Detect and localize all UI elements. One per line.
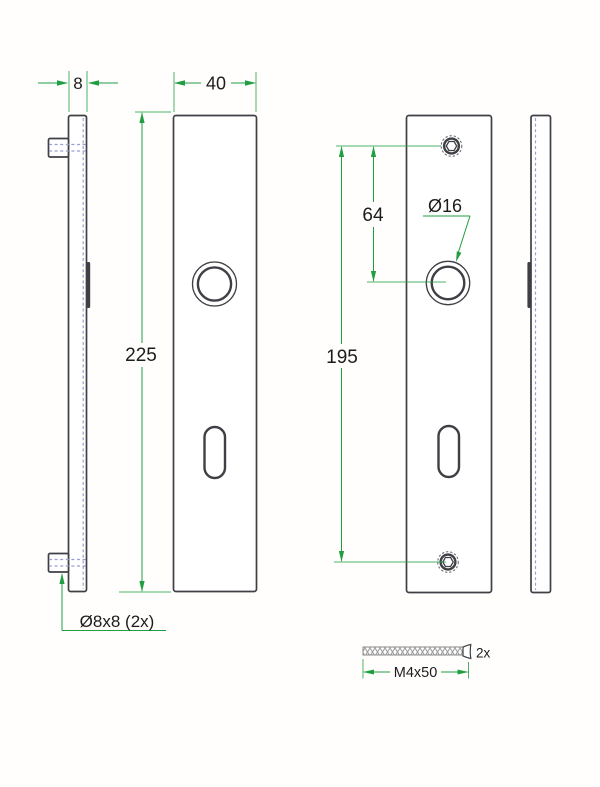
side-plate-body: [69, 116, 87, 592]
bottom-stud: [49, 554, 69, 573]
arrowhead-icon: [371, 271, 376, 282]
dim-label-64: 64: [362, 205, 384, 226]
arrowhead-icon: [363, 670, 374, 675]
side-view-right: [527, 116, 550, 593]
top-stud: [49, 139, 69, 158]
screw-countersunk-head: [463, 645, 471, 659]
arrowhead-icon: [139, 112, 144, 123]
arrowhead-icon: [458, 670, 469, 675]
screw-threaded-shaft: [363, 647, 463, 655]
side-view-left: [49, 116, 91, 592]
dimension-width: 40: [174, 72, 256, 112]
plate-body: [407, 116, 492, 593]
dim-label-thickness: 8: [73, 74, 82, 93]
arrowhead-icon: [57, 80, 68, 85]
dim-label-hole-spacing: 195: [326, 347, 358, 368]
arrowhead-icon: [139, 581, 144, 592]
dim-label-stud-spec: Ø8x8 (2x): [80, 612, 155, 631]
screw-drawing: 2x: [363, 645, 491, 661]
dim-label-height: 225: [125, 345, 157, 366]
dim-label-screw-spec: M4x50: [394, 665, 438, 681]
side-plate-body: [531, 116, 551, 593]
dimension-thickness: 8: [38, 71, 118, 112]
collar-profile: [527, 262, 531, 308]
front-view-screw-plate: [407, 116, 492, 593]
arrowhead-icon: [174, 80, 185, 85]
dim-label-d16: Ø16: [428, 196, 462, 216]
collar-profile: [87, 262, 91, 308]
arrowhead-icon: [339, 551, 344, 562]
arrowhead-icon: [371, 146, 376, 157]
dim-label-width: 40: [206, 74, 226, 94]
drawing-svg: 8 40 225: [0, 0, 600, 787]
technical-drawing-page: 8 40 225: [0, 0, 600, 787]
arrowhead-icon: [88, 80, 99, 85]
plate-body: [174, 116, 257, 592]
front-view-handle-plate: [174, 116, 257, 592]
label-screw-quantity: 2x: [476, 646, 491, 661]
arrowhead-icon: [339, 146, 344, 157]
arrowhead-icon: [245, 80, 256, 85]
dimension-height: 225: [119, 112, 171, 592]
dimension-screw-spec: M4x50: [363, 659, 469, 681]
